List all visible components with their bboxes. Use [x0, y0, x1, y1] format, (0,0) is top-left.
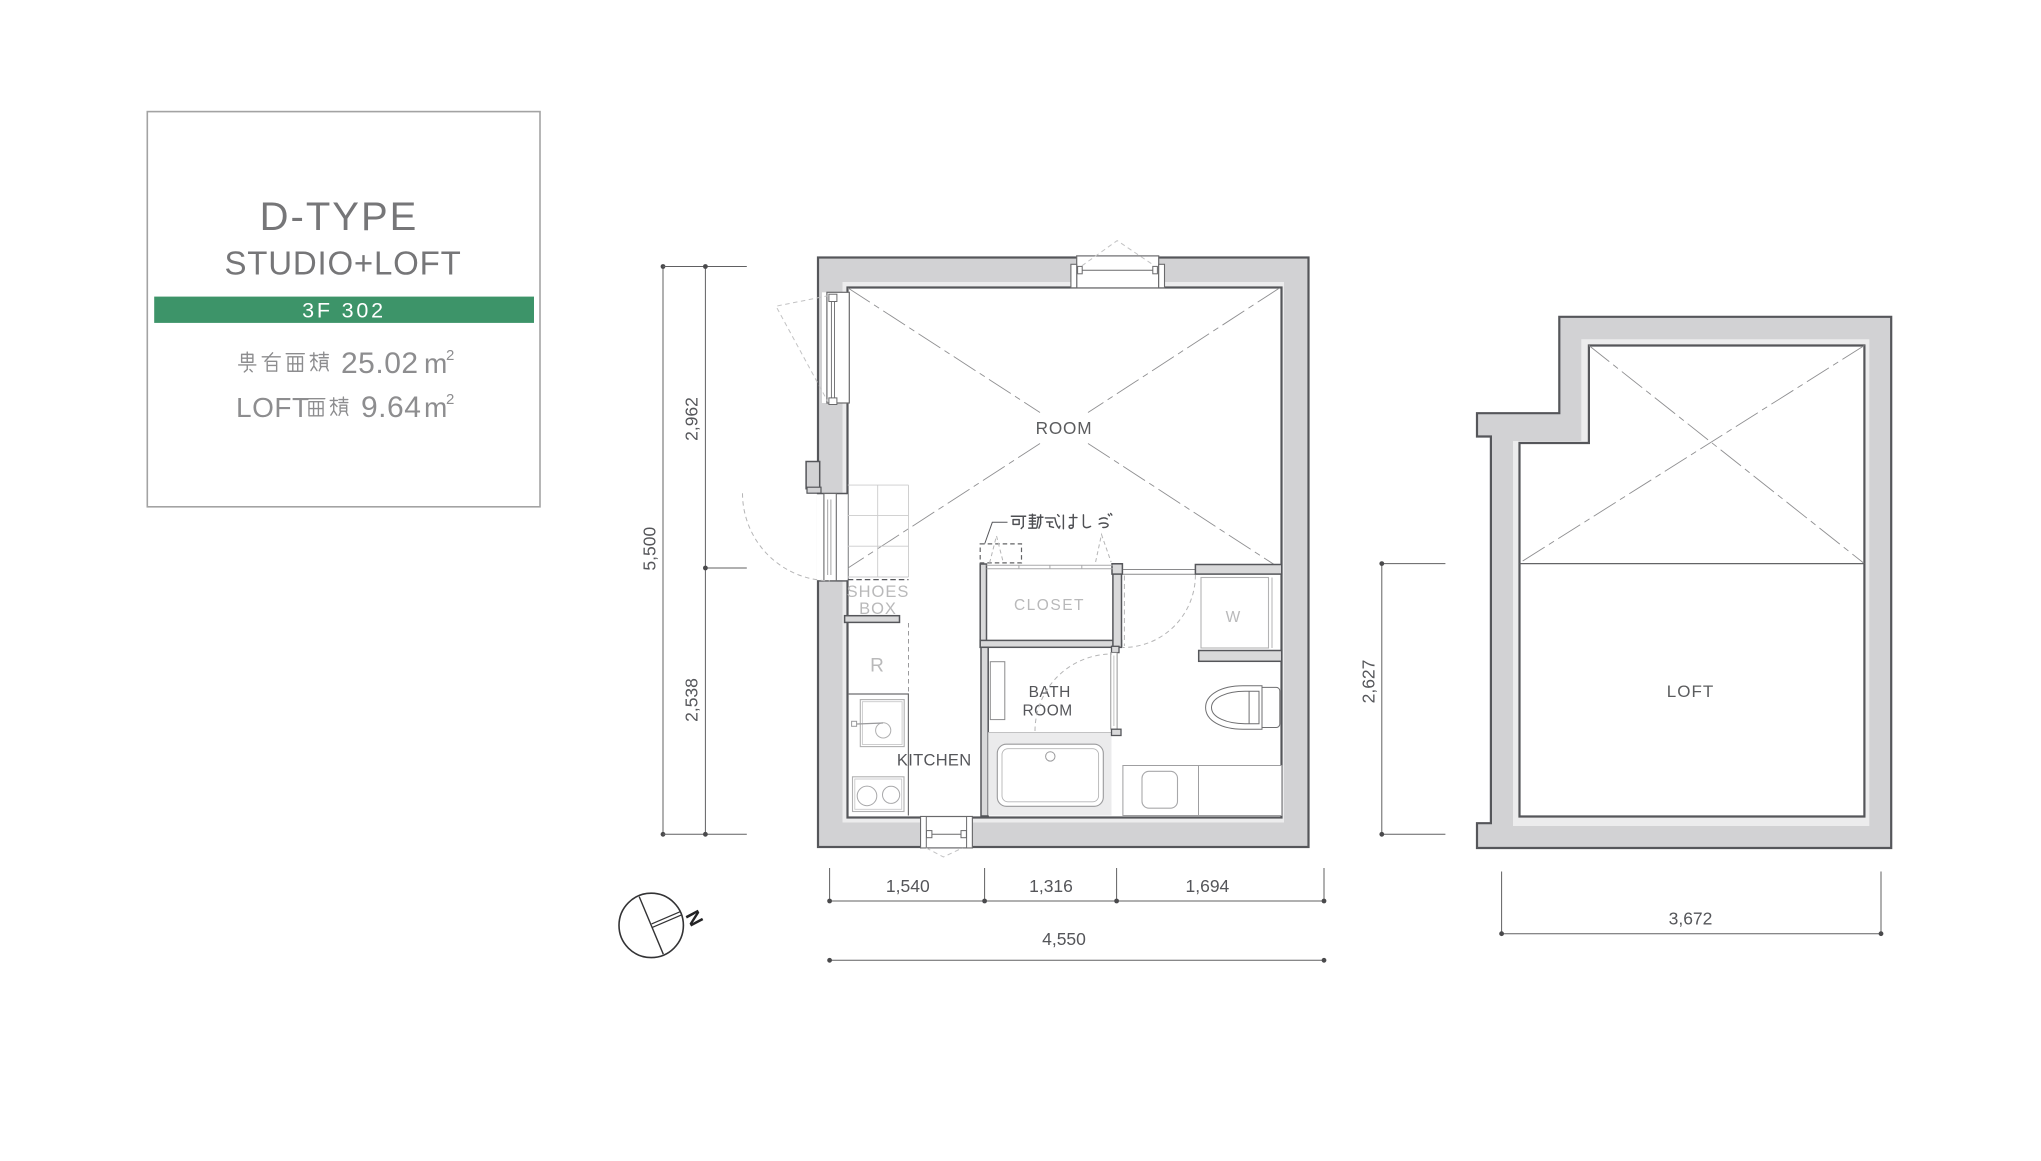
svg-text:LOFT: LOFT: [236, 392, 310, 423]
svg-text:ROOM: ROOM: [1022, 702, 1072, 719]
svg-text:m: m: [424, 392, 447, 423]
svg-text:4,550: 4,550: [1042, 929, 1086, 949]
svg-text:R: R: [870, 656, 884, 677]
svg-text:LOFT: LOFT: [1667, 682, 1714, 701]
svg-text:3,672: 3,672: [1669, 909, 1713, 929]
svg-text:CLOSET: CLOSET: [1014, 597, 1085, 614]
svg-text:2: 2: [446, 391, 454, 408]
svg-text:BATH: BATH: [1029, 684, 1071, 701]
svg-text:1,694: 1,694: [1186, 876, 1230, 896]
svg-text:m: m: [424, 348, 447, 379]
svg-text:5,500: 5,500: [640, 527, 660, 571]
svg-text:STUDIO+LOFT: STUDIO+LOFT: [224, 245, 461, 282]
svg-text:1,540: 1,540: [886, 876, 930, 896]
svg-text:SHOES: SHOES: [847, 583, 910, 601]
svg-text:2,962: 2,962: [682, 397, 702, 441]
svg-text:W: W: [1226, 609, 1241, 626]
svg-text:2: 2: [446, 347, 454, 364]
svg-text:2,538: 2,538: [682, 678, 702, 722]
svg-text:1,316: 1,316: [1029, 876, 1073, 896]
svg-text:3F 302: 3F 302: [302, 299, 386, 323]
svg-text:D-TYPE: D-TYPE: [260, 195, 419, 239]
svg-text:KITCHEN: KITCHEN: [897, 752, 972, 770]
svg-text:ROOM: ROOM: [1036, 418, 1093, 438]
svg-text:9.64: 9.64: [361, 391, 421, 424]
svg-text:2,627: 2,627: [1359, 660, 1379, 704]
svg-text:25.02: 25.02: [341, 347, 419, 380]
